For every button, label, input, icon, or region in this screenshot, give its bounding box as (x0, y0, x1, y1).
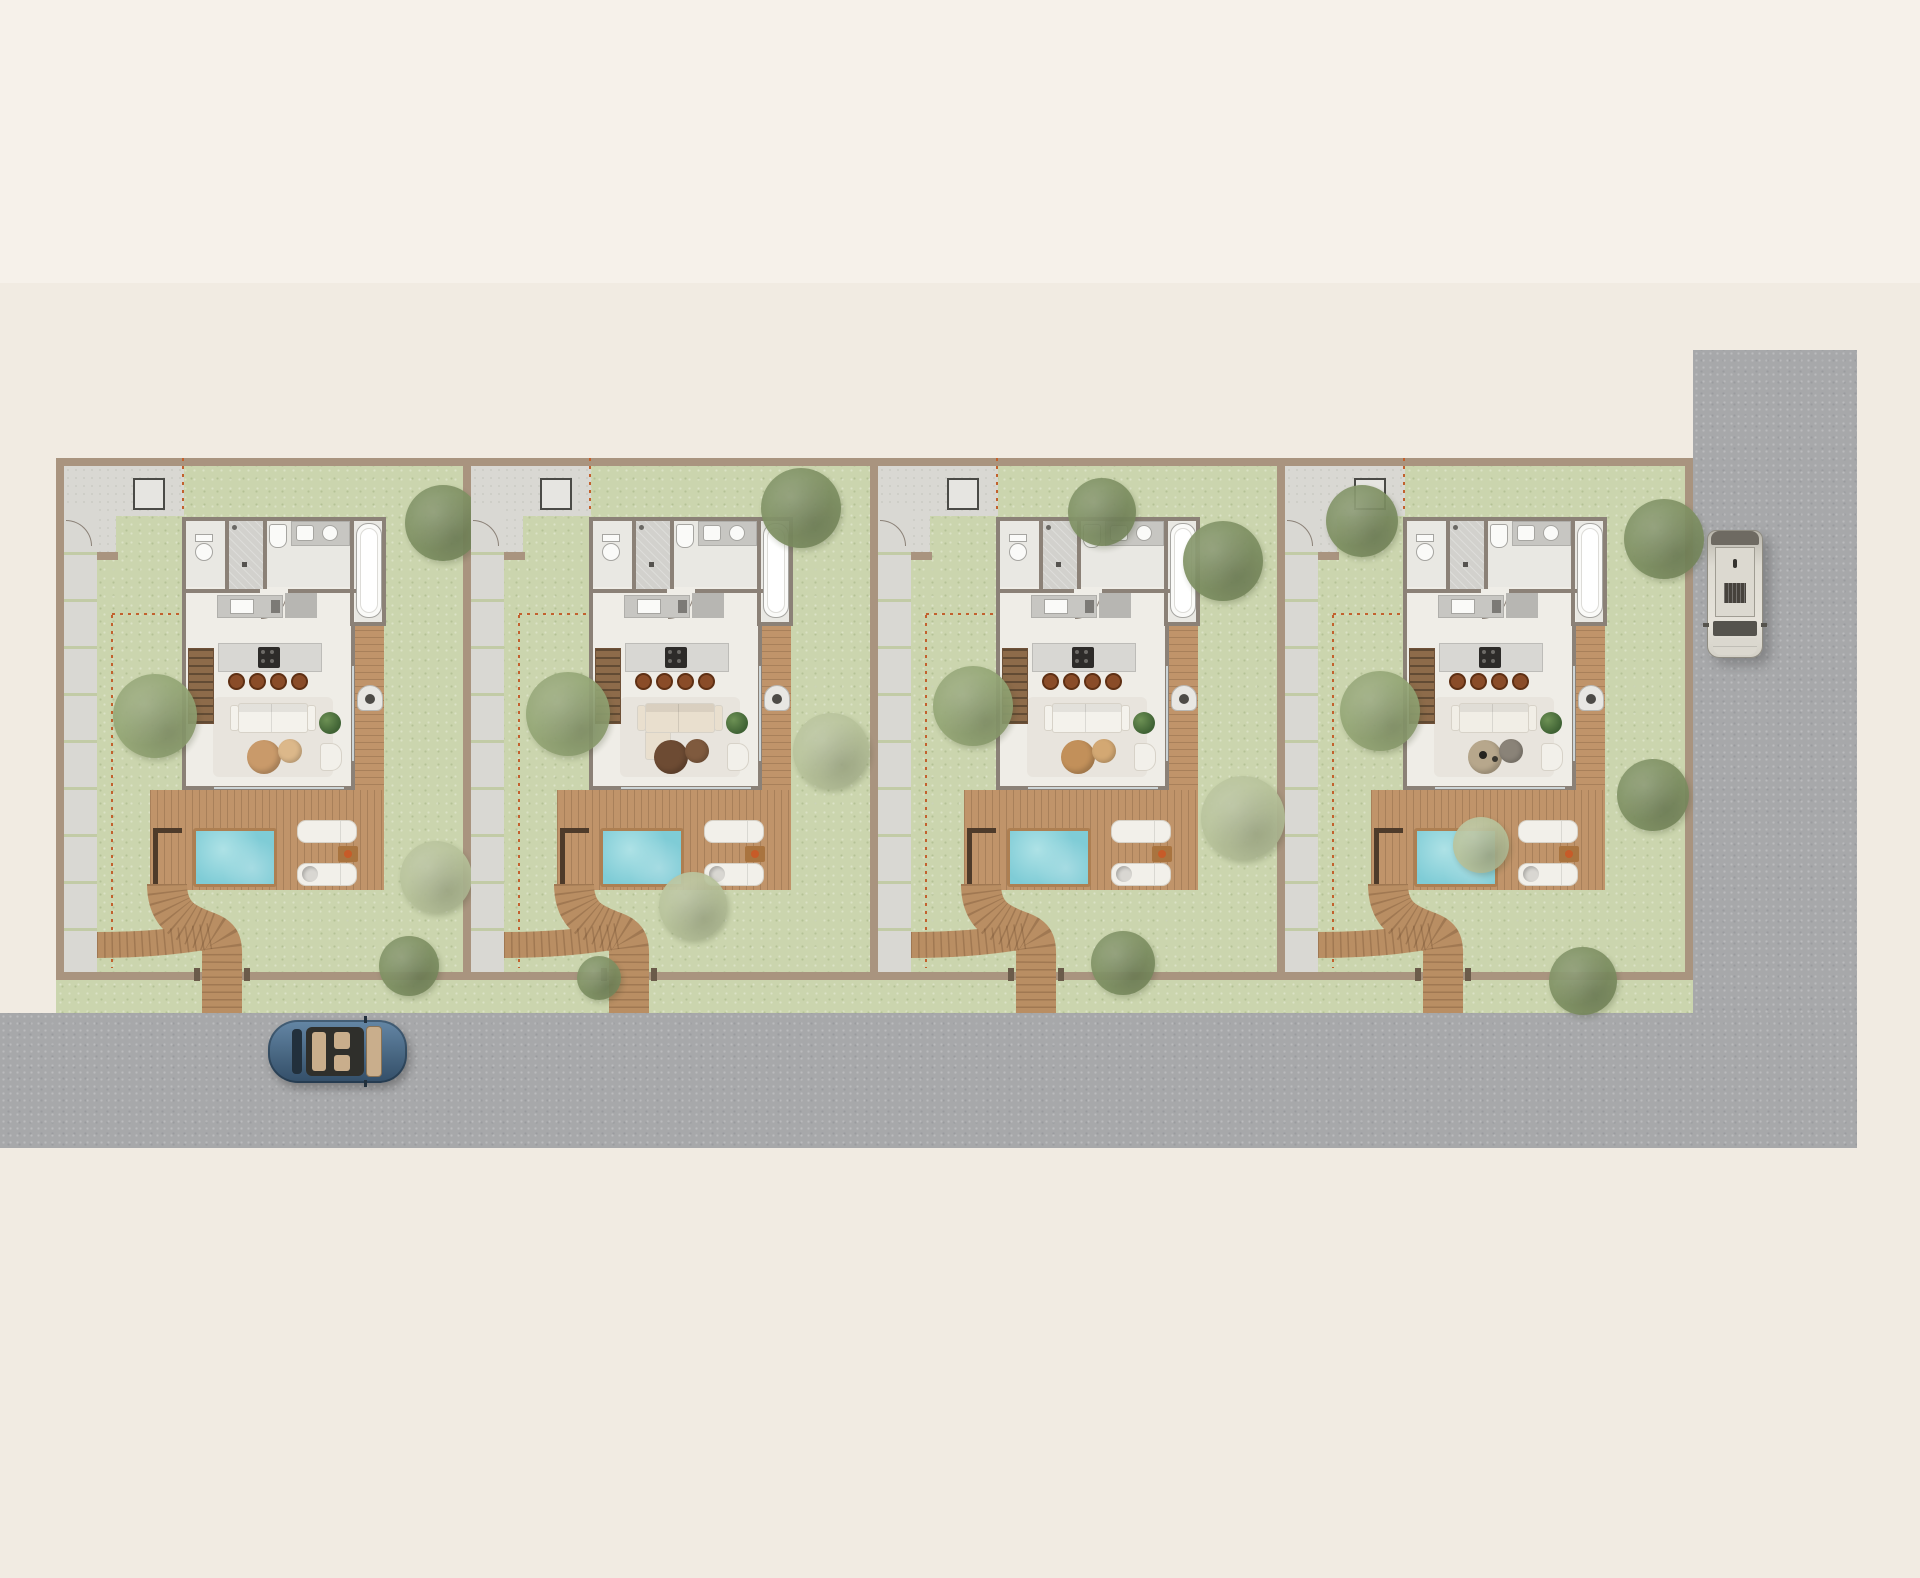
bathtub-basin (1174, 528, 1192, 613)
car-mirror (364, 1016, 367, 1023)
sink-icon (322, 525, 338, 541)
wall (1484, 521, 1488, 589)
bar-stool-icon (1063, 673, 1080, 690)
bar-stool-icon (1491, 673, 1508, 690)
gate-post (1465, 968, 1471, 981)
coffee-table-icon (278, 739, 302, 763)
armchair-icon (320, 743, 342, 771)
van-roof (1711, 531, 1759, 545)
sliding-door (621, 787, 751, 789)
plant-icon (726, 712, 748, 734)
wall (996, 517, 1000, 790)
bar-stool-icon (291, 673, 308, 690)
tree-icon (793, 713, 869, 789)
coffee-table-icon (685, 739, 709, 763)
skylight-square (133, 478, 165, 510)
bar-stool-icon (635, 673, 652, 690)
wall (350, 521, 354, 622)
shower-drain-icon (1463, 562, 1468, 567)
wall (1403, 517, 1407, 790)
sofa-armrest (714, 705, 723, 731)
sofa-armrest (1044, 705, 1053, 731)
sofa-icon (1459, 703, 1529, 733)
shower-head-icon (1453, 525, 1458, 530)
bar-stool-icon (1470, 673, 1487, 690)
stairs-icon (1409, 648, 1435, 724)
background-top-band (0, 0, 1920, 283)
coffee-table-icon (1092, 739, 1116, 763)
villa-4 (1285, 466, 1684, 1013)
tree-icon (1091, 931, 1155, 995)
shower-head-icon (639, 525, 644, 530)
wall (182, 517, 386, 521)
stairs-icon (1002, 648, 1028, 724)
sofa-armrest (307, 705, 316, 731)
van-roof-box (1715, 547, 1755, 617)
sink-icon (1543, 525, 1559, 541)
bar-stool-icon (249, 673, 266, 690)
setback-dashed-line (182, 458, 184, 514)
wall (1077, 521, 1081, 589)
van-icon (1707, 530, 1763, 658)
plant-icon (1540, 712, 1562, 734)
stairs-icon (188, 648, 214, 724)
van-hood (1713, 638, 1757, 655)
kitchen-sink-icon (1044, 599, 1068, 614)
tree-icon (400, 841, 472, 913)
bowl-icon (751, 850, 759, 858)
side-path (878, 508, 911, 972)
shower-icon (1450, 521, 1484, 589)
wall (757, 622, 793, 626)
window (1573, 666, 1575, 761)
setback-dashed-line (519, 613, 591, 615)
gate-post (194, 968, 200, 981)
window (352, 666, 354, 761)
gate-post (1415, 968, 1421, 981)
bowl-icon (1565, 850, 1573, 858)
kitchen-sink-icon (637, 599, 661, 614)
bathtub-basin (360, 528, 378, 613)
car-windshield (366, 1026, 382, 1077)
sun-lounger-icon (704, 820, 764, 843)
coffee-table-icon (654, 740, 688, 774)
sink-icon (1517, 525, 1535, 541)
gate-post (1058, 968, 1064, 981)
side-path (1285, 508, 1318, 972)
van-mirror (1761, 623, 1767, 627)
toilet-tank-icon (1416, 534, 1434, 542)
bathtub-basin (767, 528, 785, 613)
wall-toilet-icon (1490, 524, 1508, 548)
sofa-armrest (230, 705, 239, 731)
plunge-pool (193, 828, 277, 887)
wall (1403, 517, 1607, 521)
kitchen-cabinet (692, 593, 724, 618)
plant-icon (1133, 712, 1155, 734)
skylight-square (540, 478, 572, 510)
bar-stool-icon (1042, 673, 1059, 690)
outdoor-shower-frame (560, 828, 589, 890)
kitchen-appliance-icon (271, 600, 280, 613)
skylight-square (947, 478, 979, 510)
tree-icon (379, 936, 439, 996)
towel-icon (302, 866, 318, 882)
toilet-icon (602, 543, 620, 561)
outdoor-fireplace-icon (1171, 685, 1197, 711)
tree-icon (577, 956, 621, 1000)
van-roof-vent (1724, 583, 1746, 603)
setback-dashed-line (1332, 615, 1334, 968)
wall (382, 517, 386, 626)
sofa-armrest (1121, 705, 1130, 731)
coffee-table-icon (1061, 740, 1095, 774)
coffee-table-icon (1499, 739, 1523, 763)
wall (263, 521, 267, 589)
kitchen-sink-icon (230, 599, 254, 614)
wall (589, 517, 593, 790)
bar-stool-icon (1449, 673, 1466, 690)
armchair-icon (1134, 743, 1156, 771)
wall-toilet-icon (269, 524, 287, 548)
sofa-armrest (1528, 705, 1537, 731)
outdoor-fireplace-icon (764, 685, 790, 711)
bar-stool-icon (1105, 673, 1122, 690)
boundary-wall (1277, 458, 1285, 980)
toilet-tank-icon (602, 534, 620, 542)
sofa-icon (1052, 703, 1122, 733)
kitchen-appliance-icon (1085, 600, 1094, 613)
wall (1571, 622, 1607, 626)
toilet-icon (1009, 543, 1027, 561)
van-windshield (1713, 621, 1757, 636)
tree-icon (1549, 947, 1617, 1015)
armchair-icon (727, 743, 749, 771)
armchair-icon (1541, 743, 1563, 771)
bowl-icon (1158, 850, 1166, 858)
setback-dashed-line (111, 615, 113, 968)
villa-2 (471, 466, 870, 1013)
shower-drain-icon (649, 562, 654, 567)
shower-icon (636, 521, 670, 589)
outdoor-shower-frame (153, 828, 182, 890)
setback-dashed-line (518, 615, 520, 968)
bowl-icon (344, 850, 352, 858)
coffee-table-icon (247, 740, 281, 774)
cooktop-icon (1479, 647, 1501, 668)
wall (182, 517, 186, 790)
towel-icon (1523, 866, 1539, 882)
wall (350, 622, 386, 626)
car-mirror (364, 1080, 367, 1087)
shower-icon (1043, 521, 1077, 589)
wall (1603, 517, 1607, 626)
gate-post (1008, 968, 1014, 981)
wall (996, 517, 1200, 521)
bathtub-basin (1581, 528, 1599, 613)
car-icon (268, 1020, 407, 1083)
boundary-wall (870, 458, 878, 980)
van-mirror (1703, 623, 1709, 627)
sofa-icon (645, 703, 715, 733)
setback-dashed-line (926, 613, 998, 615)
sliding-door (214, 787, 344, 789)
toilet-tank-icon (1009, 534, 1027, 542)
bar-stool-icon (656, 673, 673, 690)
skylight-square (1354, 478, 1386, 510)
setback-dashed-line (996, 458, 998, 514)
sofa-icon (238, 703, 308, 733)
shower-drain-icon (1056, 562, 1061, 567)
kitchen-cabinet (1506, 593, 1538, 618)
wall (1164, 521, 1168, 622)
kitchen-appliance-icon (1492, 600, 1501, 613)
bar-stool-icon (698, 673, 715, 690)
plunge-pool (1414, 828, 1498, 887)
shower-head-icon (232, 525, 237, 530)
plunge-pool (600, 828, 684, 887)
tree-icon (1201, 776, 1285, 860)
wall (1571, 521, 1575, 622)
site-plan (0, 0, 1920, 1578)
outdoor-shower-frame (1374, 828, 1403, 890)
sliding-door (1028, 787, 1158, 789)
bar-stool-icon (270, 673, 287, 690)
bar-stool-icon (1084, 673, 1101, 690)
sink-icon (1136, 525, 1152, 541)
setback-dashed-line (589, 458, 591, 514)
towel-icon (709, 866, 725, 882)
kitchen-cabinet (1099, 593, 1131, 618)
wall (1164, 622, 1200, 626)
setback-dashed-line (925, 615, 927, 968)
window (759, 666, 761, 761)
wall-toilet-icon (1083, 524, 1101, 548)
shower-drain-icon (242, 562, 247, 567)
wall (589, 517, 793, 521)
toilet-icon (195, 543, 213, 561)
side-path (64, 508, 97, 972)
stairs-icon (595, 648, 621, 724)
wall (757, 521, 761, 622)
table-decor (1479, 751, 1487, 759)
towel-icon (1116, 866, 1132, 882)
wall (789, 517, 793, 626)
cooktop-icon (665, 647, 687, 668)
tree-icon (1617, 759, 1689, 831)
shower-icon (229, 521, 263, 589)
gate-post (244, 968, 250, 981)
sofa-armrest (1451, 705, 1460, 731)
setback-dashed-line (1333, 613, 1405, 615)
kitchen-cabinet (285, 593, 317, 618)
outdoor-shower-frame (967, 828, 996, 890)
wall (1196, 517, 1200, 626)
toilet-tank-icon (195, 534, 213, 542)
gate-post (601, 968, 607, 981)
cooktop-icon (1072, 647, 1094, 668)
car-rear-seat (312, 1032, 326, 1071)
boundary-wall (463, 458, 471, 980)
toilet-icon (1416, 543, 1434, 561)
wall-toilet-icon (676, 524, 694, 548)
bar-stool-icon (677, 673, 694, 690)
car-rear-window (292, 1029, 302, 1074)
shower-head-icon (1046, 525, 1051, 530)
plunge-pool (1007, 828, 1091, 887)
sink-icon (703, 525, 721, 541)
sun-lounger-icon (297, 820, 357, 843)
kitchen-sink-icon (1451, 599, 1475, 614)
wall (670, 521, 674, 589)
window (1166, 666, 1168, 761)
sofa-armrest (637, 705, 646, 731)
sliding-door (1435, 787, 1565, 789)
villa-3 (878, 466, 1277, 1013)
plant-icon (319, 712, 341, 734)
bar-stool-icon (1512, 673, 1529, 690)
setback-dashed-line (112, 613, 184, 615)
kitchen-appliance-icon (678, 600, 687, 613)
villa-1 (64, 466, 463, 1013)
cooktop-icon (258, 647, 280, 668)
sink-icon (729, 525, 745, 541)
sun-lounger-icon (1518, 820, 1578, 843)
car-front-seat (334, 1055, 350, 1071)
bar-stool-icon (228, 673, 245, 690)
sink-icon (296, 525, 314, 541)
setback-dashed-line (1403, 458, 1405, 514)
outdoor-fireplace-icon (357, 685, 383, 711)
sun-lounger-icon (1111, 820, 1171, 843)
sink-icon (1110, 525, 1128, 541)
side-path (471, 508, 504, 972)
car-front-seat (334, 1032, 350, 1049)
outdoor-fireplace-icon (1578, 685, 1604, 711)
gate-post (651, 968, 657, 981)
van-antenna (1733, 559, 1737, 568)
